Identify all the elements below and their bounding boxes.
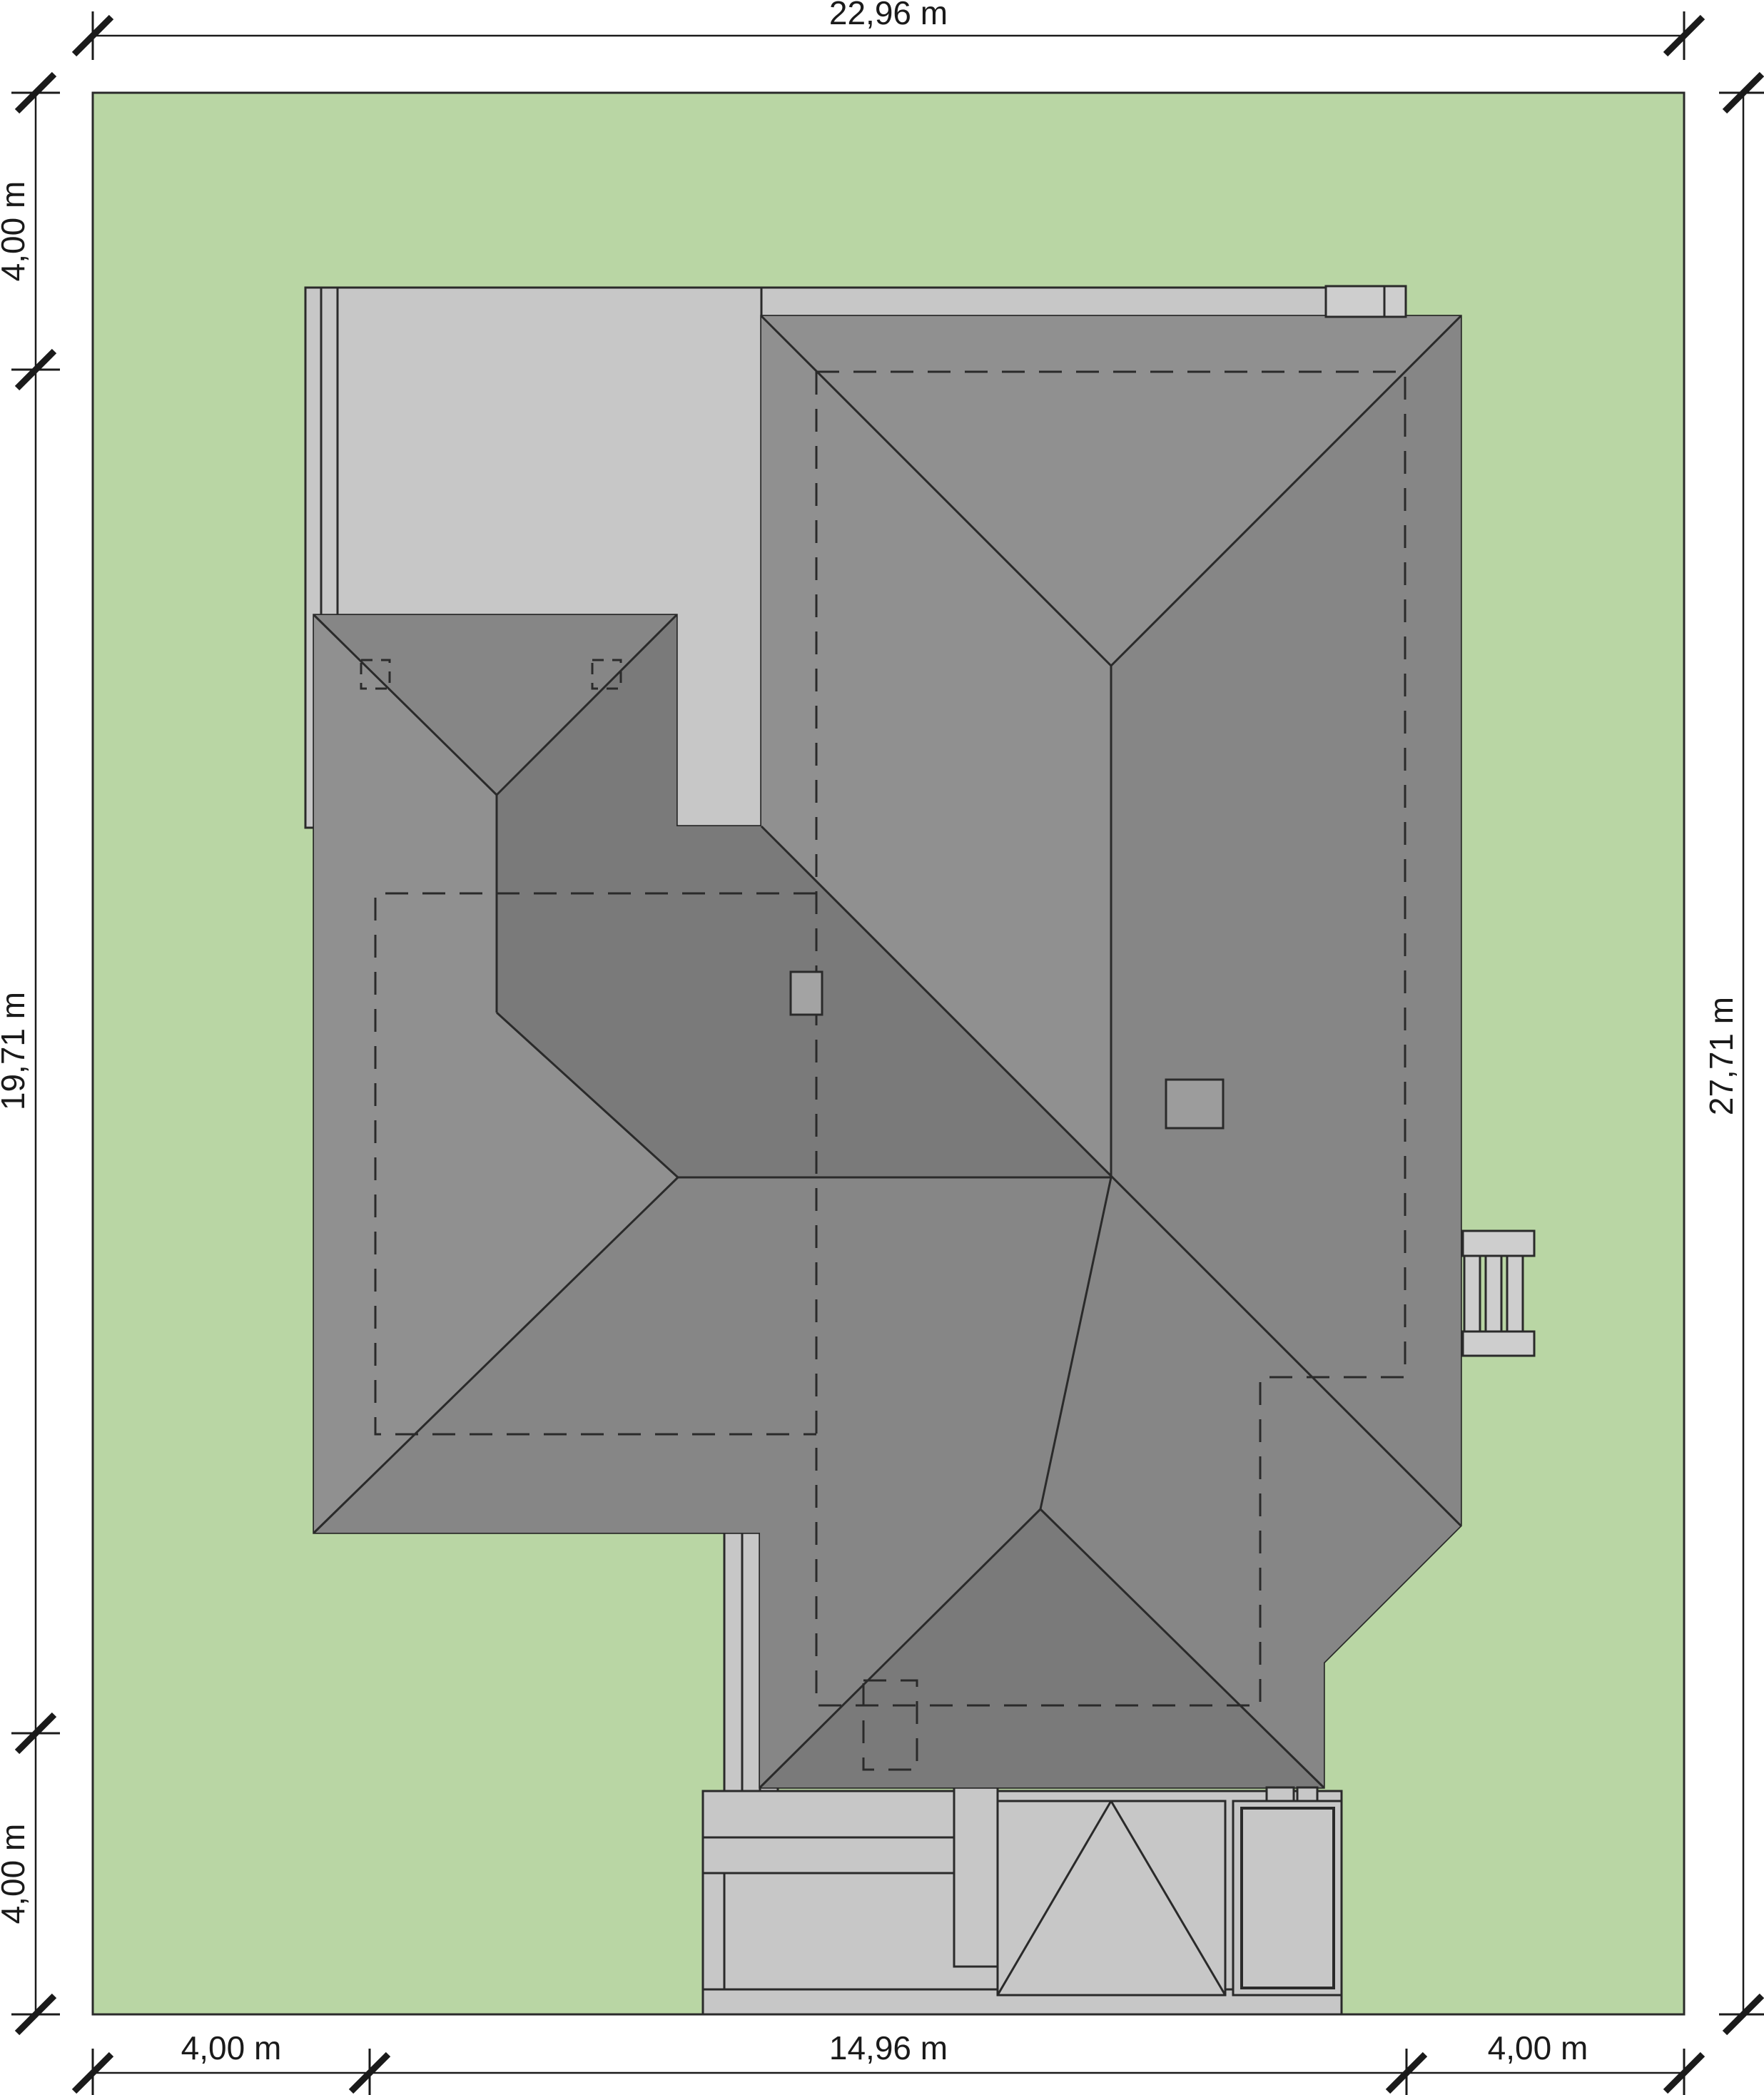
dimension-label-bottom-left: 4,00 m (181, 2029, 282, 2066)
dimension-label-bottom-center: 14,96 m (829, 2029, 948, 2066)
chimney (791, 972, 822, 1015)
site-plan-drawing: 22,96 m 4,00 m 14,96 m 4,00 m 4,00 m 19,… (0, 0, 1764, 2095)
balcony-rail (1463, 1331, 1534, 1356)
north-east-vent-group (1326, 286, 1406, 317)
threshold-step (1267, 1787, 1294, 1801)
garage-group (998, 1787, 1342, 1995)
garage-side-panel-inner (1242, 1808, 1334, 1988)
roof-edge-box (1326, 286, 1406, 317)
dimension-label-left-top: 4,00 m (0, 181, 31, 282)
dimension-label-top: 22,96 m (829, 0, 948, 31)
dimension-label-left-middle: 19,71 m (0, 992, 31, 1110)
stair-post (1486, 1256, 1501, 1331)
dimension-label-right: 27,71 m (1703, 997, 1740, 1115)
dimension-label-bottom-right: 4,00 m (1488, 2029, 1588, 2066)
balcony-rail (1463, 1231, 1534, 1256)
threshold-step (1297, 1787, 1317, 1801)
dimension-label-left-bottom: 4,00 m (0, 1824, 31, 1924)
site-plan-page: 22,96 m 4,00 m 14,96 m 4,00 m 4,00 m 19,… (0, 0, 1764, 2095)
chimney (1166, 1080, 1223, 1128)
balcony-stairs (1463, 1231, 1534, 1356)
entry-pillar (954, 1761, 998, 1967)
stair-post (1507, 1256, 1523, 1331)
stair-post (1464, 1256, 1480, 1331)
garage-door (998, 1801, 1225, 1995)
